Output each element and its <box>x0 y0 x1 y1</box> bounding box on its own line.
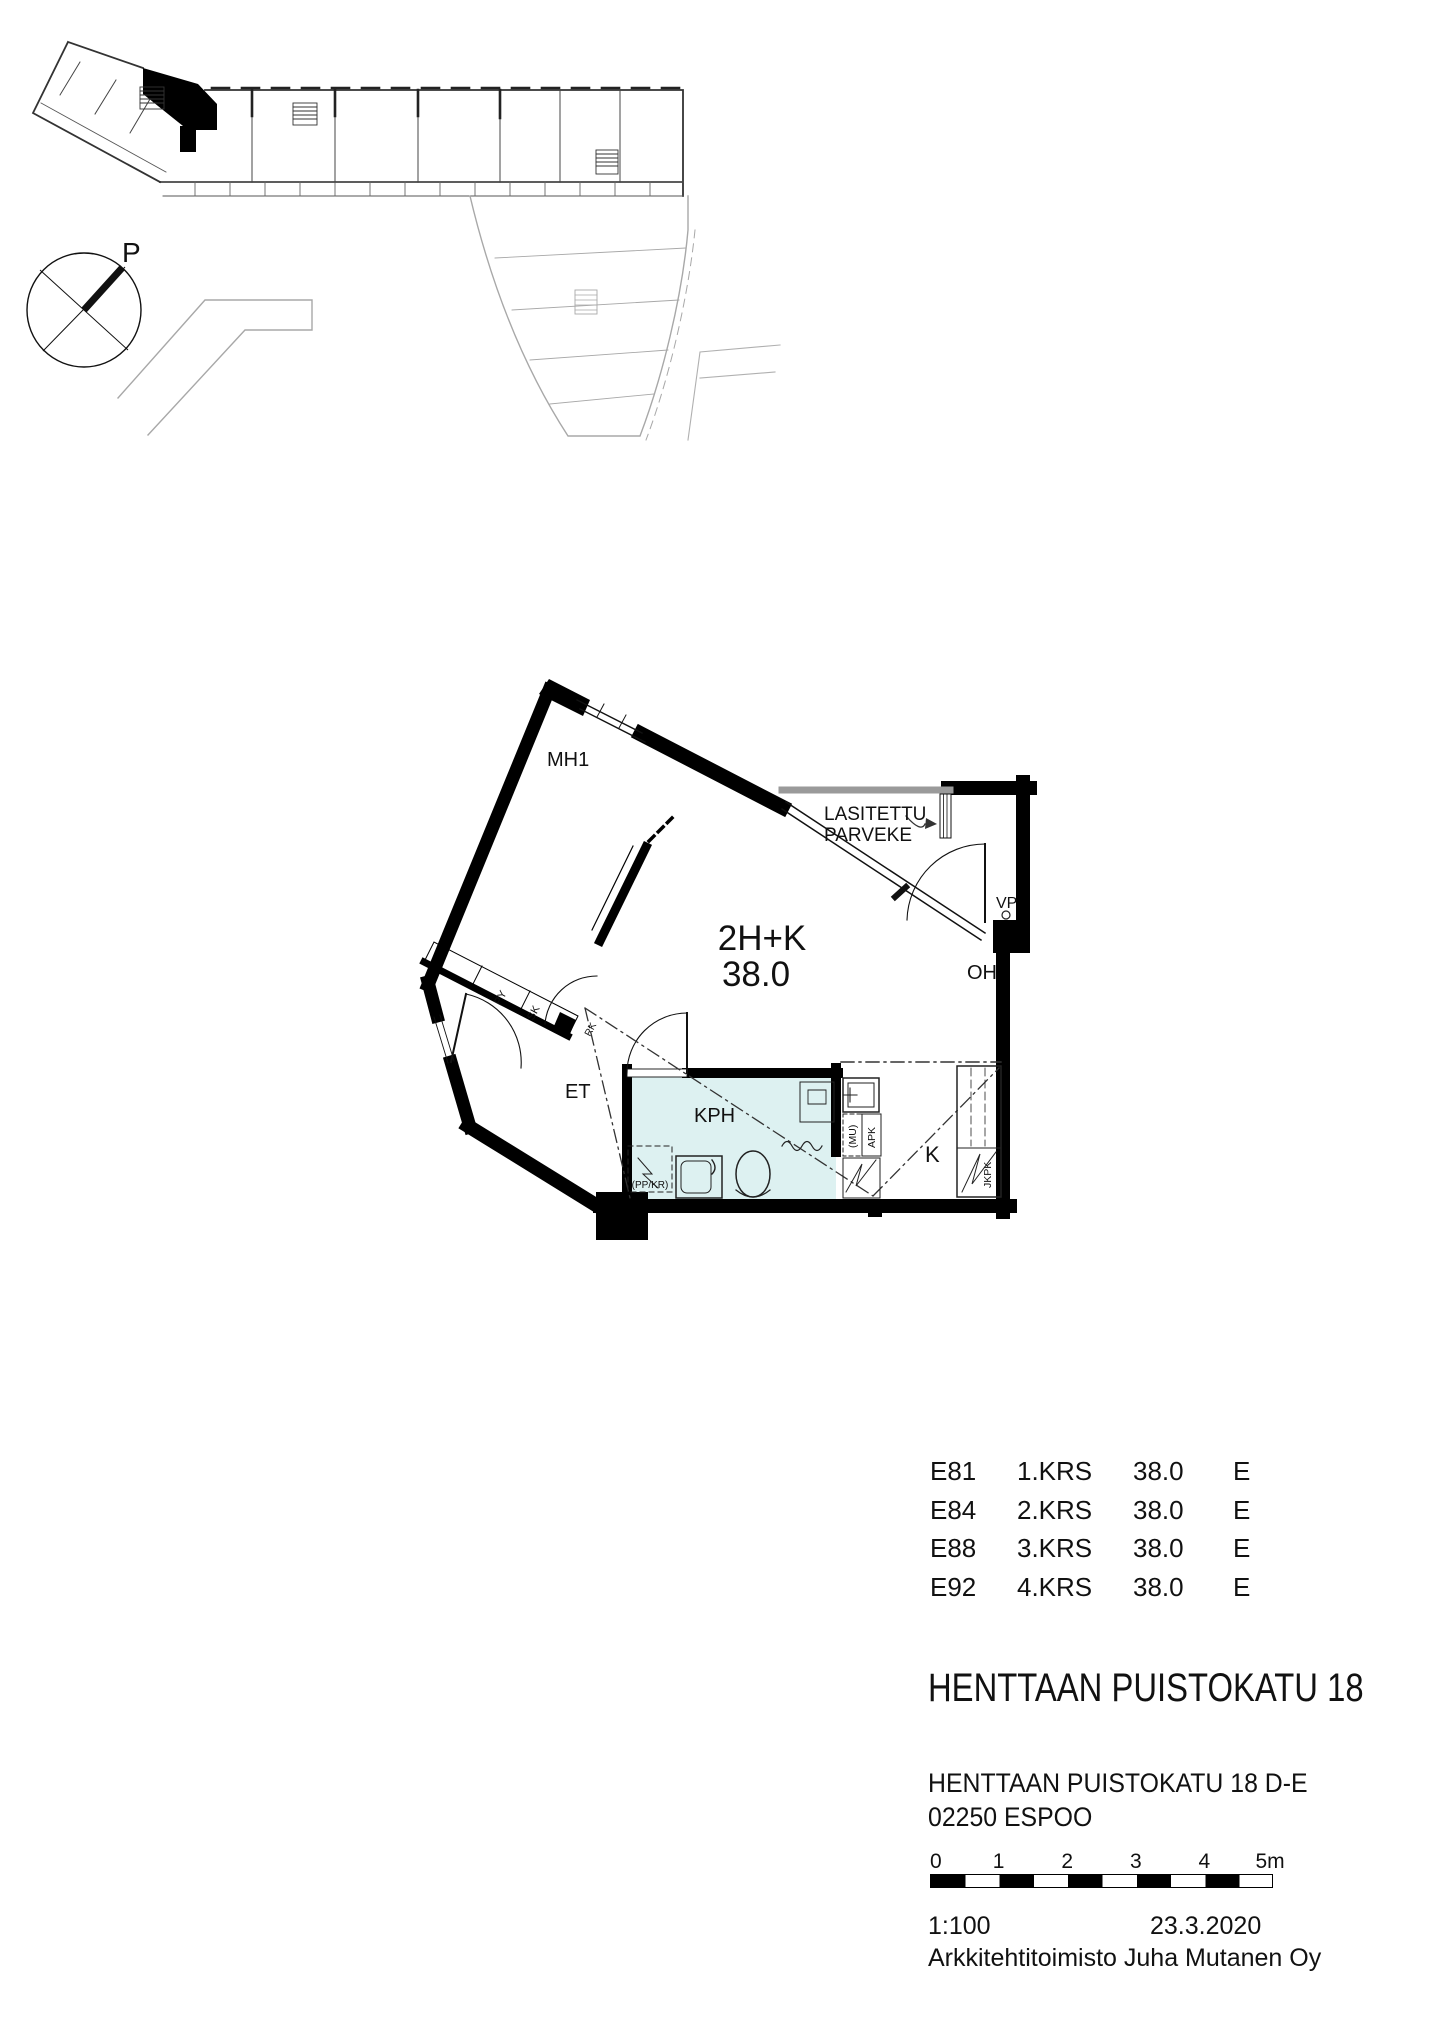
north-compass: P <box>27 237 141 367</box>
apartment-area-label: 38.0 <box>722 955 790 994</box>
drawing-date: 23.3.2020 <box>1150 1912 1261 1941</box>
apartment-type-label: 2H+K <box>718 919 807 958</box>
bathroom-label: KPH <box>694 1105 735 1127</box>
unit-area: 38.0 <box>1133 1568 1233 1607</box>
water-point-label: VP <box>996 895 1017 912</box>
balcony-glass-stack <box>940 794 951 838</box>
unit-staircase: E <box>1233 1529 1263 1568</box>
drawing-scale: 1:100 <box>928 1912 991 1941</box>
bedroom-door <box>545 976 597 1024</box>
floorplan-sheet: { "site_plan": { "north": "P" }, "floor_… <box>0 0 1440 2038</box>
balcony-annotations <box>906 816 1010 919</box>
unit-id: E81 <box>930 1452 1017 1491</box>
unit-id: E88 <box>930 1529 1017 1568</box>
balcony-label-line1: LASITETTU <box>824 804 926 825</box>
dishwasher-label: APK <box>866 1127 878 1148</box>
site-plan <box>33 42 780 440</box>
sliding-door <box>592 818 672 941</box>
living-room-label: OH <box>967 962 997 984</box>
bedroom-label: MH1 <box>547 749 589 771</box>
architectural-drawing: P <box>0 0 1440 2038</box>
microwave-label: (MU) <box>847 1125 859 1148</box>
apartment-plan: MH1 2H+K 38.0 LASITETTU PARVEKE OH VP ET… <box>424 679 1030 1240</box>
scale-tick-label: 0 <box>930 1850 942 1874</box>
north-label: P <box>122 237 141 268</box>
scale-tick-label: 3 <box>1130 1850 1142 1874</box>
fridge-unit <box>957 1066 1001 1197</box>
balcony-label-line2: PARVEKE <box>824 825 912 846</box>
unit-staircase: E <box>1233 1491 1263 1530</box>
balcony-door <box>907 844 985 922</box>
unit-floor: 2.KRS <box>1017 1491 1133 1530</box>
kitchen-label: K <box>925 1142 940 1167</box>
bathroom-door <box>627 1013 687 1073</box>
architect-firm: Arkkitehtitoimisto Juha Mutanen Oy <box>928 1944 1321 1973</box>
washer-reservation-label: (PP/KR) <box>632 1180 669 1191</box>
electrical-rk-label: RK <box>583 1021 599 1039</box>
wardrobes <box>424 942 578 1036</box>
scale-bar: 0 1 2 3 4 5m <box>930 1850 1273 1888</box>
neighbor-building-outline <box>118 300 312 435</box>
scale-tick-label: 2 <box>1061 1850 1073 1874</box>
scale-tick-label: 1 <box>993 1850 1005 1874</box>
fridge-label: JKPK <box>982 1162 994 1188</box>
unit-area: 38.0 <box>1133 1529 1233 1568</box>
unit-id: E92 <box>930 1568 1017 1607</box>
scale-bar-graphic <box>930 1874 1273 1888</box>
unit-floor: 3.KRS <box>1017 1529 1133 1568</box>
scale-tick-label: 4 <box>1199 1850 1211 1874</box>
unit-floor: 4.KRS <box>1017 1568 1133 1607</box>
project-city: 02250 ESPOO <box>928 1802 1092 1833</box>
unit-area: 38.0 <box>1133 1491 1233 1530</box>
unit-table: E81 1.KRS 38.0 E E84 2.KRS 38.0 E E88 3.… <box>930 1452 1263 1606</box>
unit-staircase: E <box>1233 1568 1263 1607</box>
unit-area: 38.0 <box>1133 1452 1233 1491</box>
unit-floor: 1.KRS <box>1017 1452 1133 1491</box>
project-title: HENTTAAN PUISTOKATU 18 <box>928 1666 1364 1711</box>
scale-tick-label: 5m <box>1255 1850 1284 1874</box>
project-address: HENTTAAN PUISTOKATU 18 D-E <box>928 1768 1308 1799</box>
entry-label: ET <box>565 1081 591 1103</box>
north-needle <box>84 268 122 310</box>
unit-staircase: E <box>1233 1452 1263 1491</box>
unit-id: E84 <box>930 1491 1017 1530</box>
scale-bar-labels: 0 1 2 3 4 5m <box>930 1850 1273 1874</box>
water-point-symbol <box>1002 911 1010 919</box>
